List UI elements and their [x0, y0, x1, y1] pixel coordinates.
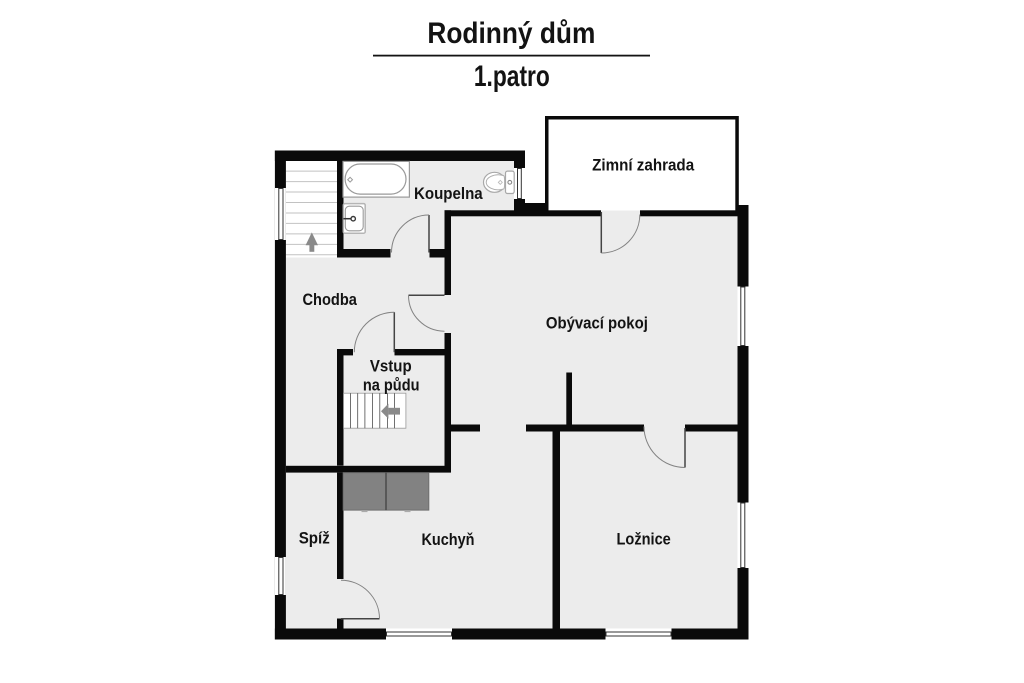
svg-text:Vstup: Vstup [370, 356, 412, 375]
svg-text:na půdu: na půdu [363, 376, 420, 395]
svg-text:Ložnice: Ložnice [617, 530, 671, 549]
svg-text:Zimní zahrada: Zimní zahrada [592, 155, 694, 174]
svg-text:Obývací pokoj: Obývací pokoj [546, 314, 648, 333]
svg-text:Spíž: Spíž [299, 529, 330, 548]
svg-text:Chodba: Chodba [303, 290, 358, 309]
svg-text:1.patro: 1.patro [474, 60, 550, 93]
svg-text:Koupelna: Koupelna [414, 184, 483, 203]
svg-text:Kuchyň: Kuchyň [422, 530, 475, 549]
svg-text:Rodinný dům: Rodinný dům [427, 17, 595, 50]
